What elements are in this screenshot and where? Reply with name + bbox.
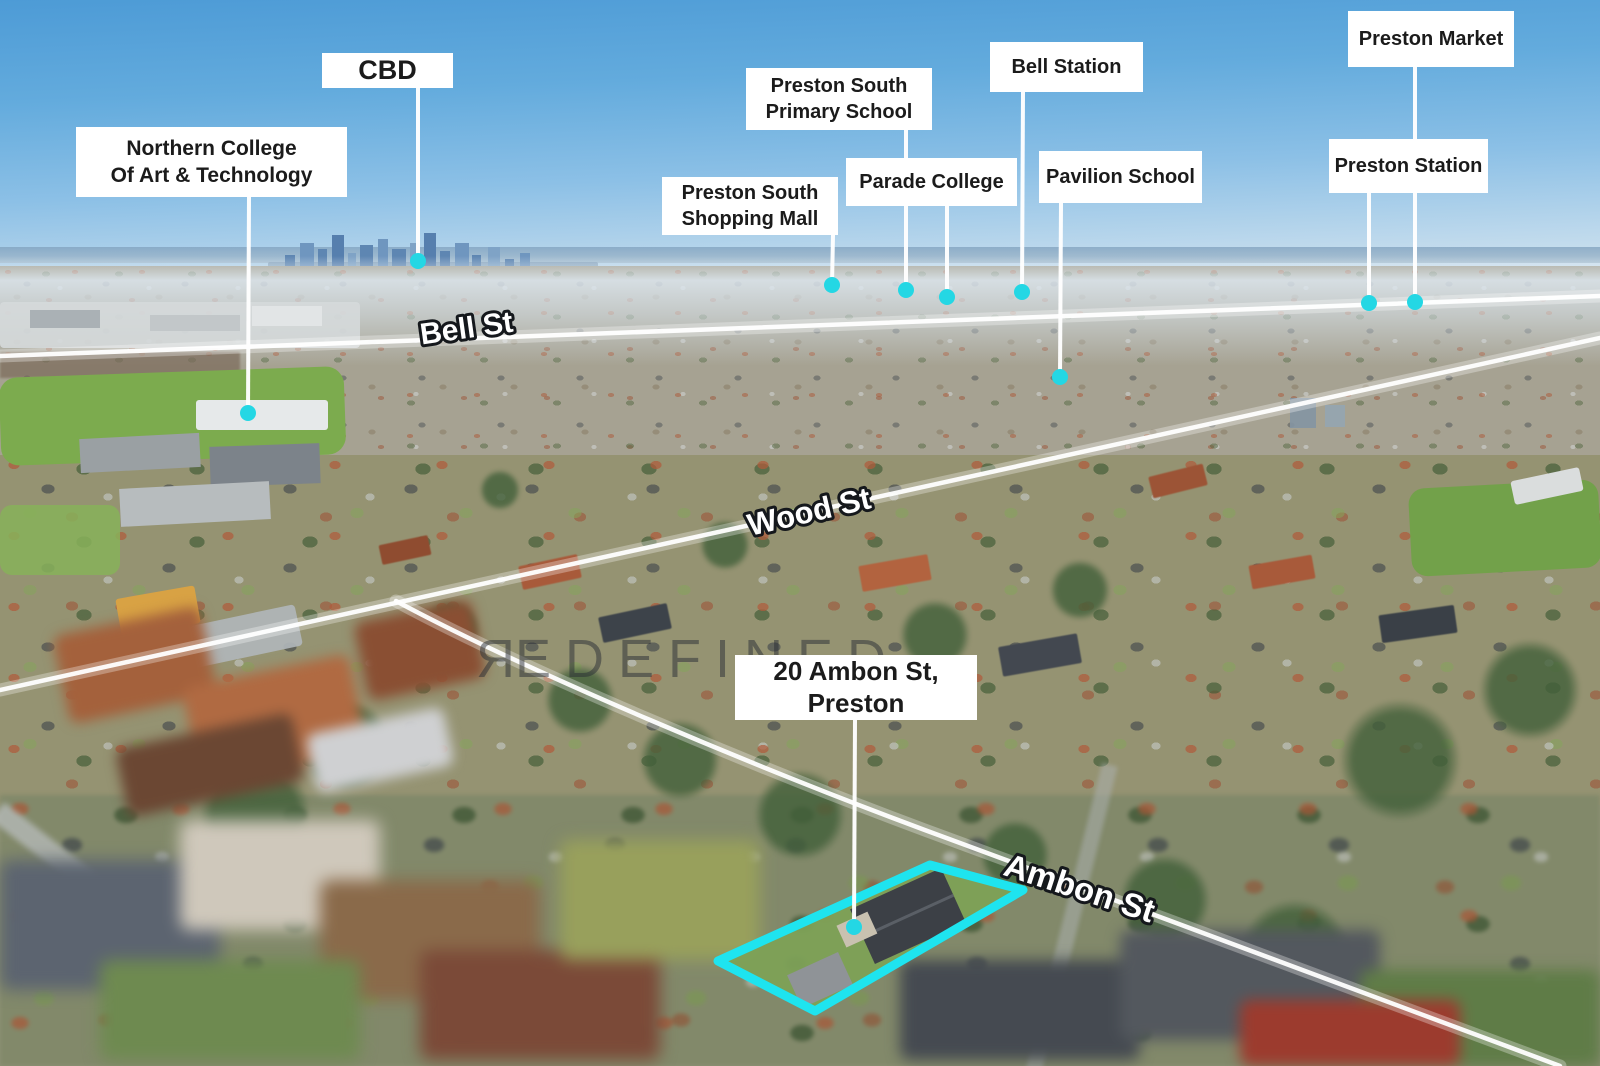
landmark-label-preston-station: Preston Station (1329, 139, 1488, 193)
label-text: CBD (358, 53, 417, 88)
landmark-label-bell-station: Bell Station (990, 42, 1143, 92)
street-label-bell-st: Bell St (418, 306, 515, 352)
marker-dot-primary-school (898, 282, 914, 298)
leader-line-bell-station (1022, 92, 1023, 292)
marker-dot-parade-college (939, 289, 955, 305)
landmark-label-preston-south-mall: Preston South Shopping Mall (662, 177, 838, 235)
label-text: Bell Station (1011, 54, 1121, 80)
label-text: Preston (808, 688, 905, 719)
landmark-label-parade-college: Parade College (846, 158, 1017, 206)
label-text: Preston Station (1335, 153, 1483, 179)
watermark-letter: R (462, 628, 515, 690)
landmark-label-cbd: CBD (322, 53, 453, 88)
property-address-label: 20 Ambon St, Preston (735, 655, 977, 720)
label-text: Shopping Mall (682, 206, 819, 232)
label-text: Northern College (126, 135, 296, 162)
leader-line-pavilion-school (1060, 203, 1061, 377)
leader-line-northern-college (248, 197, 249, 413)
label-text: Pavilion School (1046, 164, 1195, 190)
label-text: 20 Ambon St, (773, 656, 938, 687)
label-text: Preston Market (1359, 26, 1504, 52)
landmark-label-pavilion-school: Pavilion School (1039, 151, 1202, 203)
landmark-label-preston-market: Preston Market (1348, 11, 1514, 67)
marker-dot-preston-station (1361, 295, 1377, 311)
label-text: Of Art & Technology (111, 162, 313, 189)
marker-dot-bell-station (1014, 284, 1030, 300)
marker-dot-pavilion-school (1052, 369, 1068, 385)
street-labels: Bell St Wood St Ambon St (418, 306, 1160, 930)
label-text: Parade College (859, 169, 1004, 195)
aerial-property-flyer: Bell St Wood St Ambon St (0, 0, 1600, 1066)
street-label-wood-st: Wood St (744, 480, 874, 542)
marker-dot-shopping-mall (824, 277, 840, 293)
leader-line-property (854, 720, 855, 927)
label-text: Preston South (682, 180, 819, 206)
landmark-label-northern-college: Northern College Of Art & Technology (76, 127, 347, 197)
label-text: Preston South (771, 73, 908, 99)
marker-dot-preston-market (1407, 294, 1423, 310)
marker-dot-cbd (410, 253, 426, 269)
landmark-label-preston-south-primary: Preston South Primary School (746, 68, 932, 130)
road-bell-st (0, 296, 1600, 356)
marker-dot-property (846, 919, 862, 935)
label-text: Primary School (766, 99, 913, 125)
marker-dot-northern-college (240, 405, 256, 421)
